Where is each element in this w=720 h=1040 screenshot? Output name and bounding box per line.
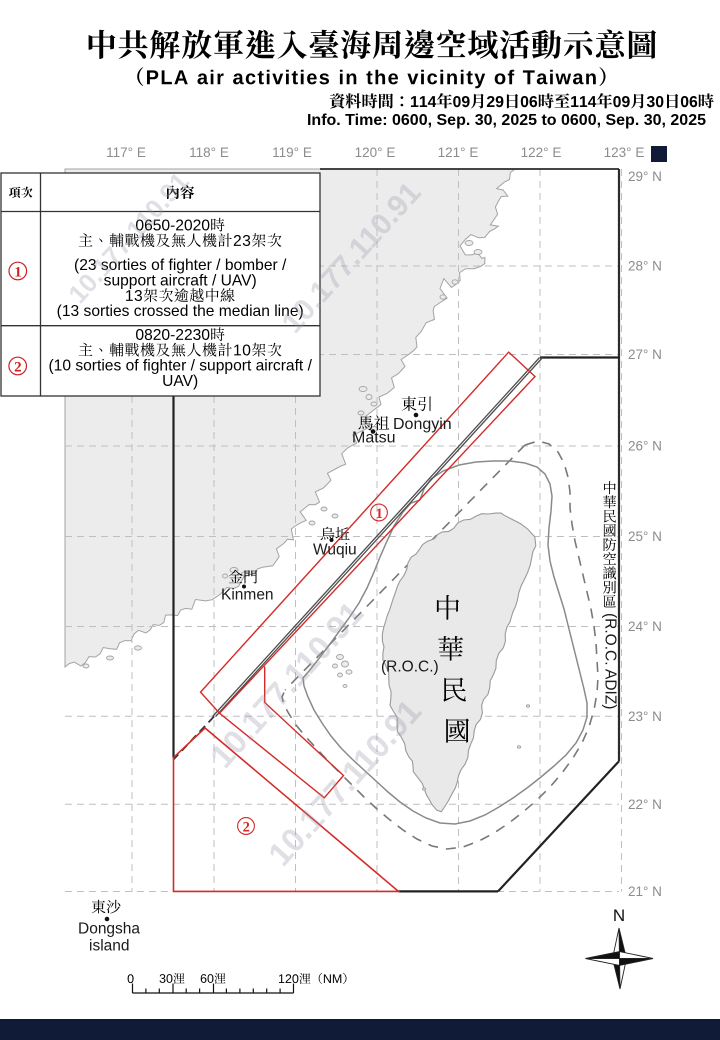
svg-text:28° N: 28° N — [628, 259, 662, 274]
svg-text:(R.O.C.): (R.O.C.) — [381, 659, 439, 676]
svg-text:support aircraft / UAV): support aircraft / UAV) — [104, 273, 257, 290]
svg-text:119° E: 119° E — [272, 145, 312, 160]
svg-text:26° N: 26° N — [628, 439, 662, 454]
svg-text:121° E: 121° E — [438, 145, 479, 160]
svg-text:(R.O.C. ADIZ): (R.O.C. ADIZ) — [602, 613, 619, 709]
svg-text:27° N: 27° N — [628, 347, 662, 362]
svg-text:24° N: 24° N — [628, 619, 662, 634]
svg-text:118° E: 118° E — [189, 145, 229, 160]
svg-text:Wuqiu: Wuqiu — [313, 542, 357, 559]
svg-text:(13 sorties crossed the median: (13 sorties crossed the median line) — [57, 303, 304, 320]
svg-text:123° E: 123° E — [604, 145, 645, 160]
svg-text:1: 1 — [14, 265, 22, 281]
svg-text:N: N — [613, 906, 625, 925]
svg-text:21° N: 21° N — [628, 884, 662, 899]
svg-text:Kinmen: Kinmen — [221, 587, 274, 604]
svg-text:Info. Time: 0600, Sep. 30, 202: Info. Time: 0600, Sep. 30, 2025 to 0600,… — [307, 112, 706, 129]
svg-text:Dongsha: Dongsha — [78, 921, 140, 938]
svg-text:1: 1 — [376, 506, 383, 522]
svg-text:120° E: 120° E — [355, 145, 396, 160]
svg-text:Dongyin: Dongyin — [393, 416, 452, 433]
svg-text:22° N: 22° N — [628, 797, 662, 812]
svg-text:(10 sorties of fighter / suppo: (10 sorties of fighter / support aircraf… — [48, 358, 312, 375]
svg-text:UAV): UAV) — [162, 373, 198, 390]
svg-text:23° N: 23° N — [628, 709, 662, 724]
svg-text:island: island — [89, 938, 130, 955]
svg-text:117° E: 117° E — [106, 145, 146, 160]
svg-text:25° N: 25° N — [628, 529, 662, 544]
svg-text:2: 2 — [14, 360, 22, 376]
svg-text:29° N: 29° N — [628, 169, 662, 184]
svg-text:122° E: 122° E — [521, 145, 562, 160]
svg-text:2: 2 — [243, 820, 250, 836]
svg-text:Matsu: Matsu — [352, 430, 396, 447]
